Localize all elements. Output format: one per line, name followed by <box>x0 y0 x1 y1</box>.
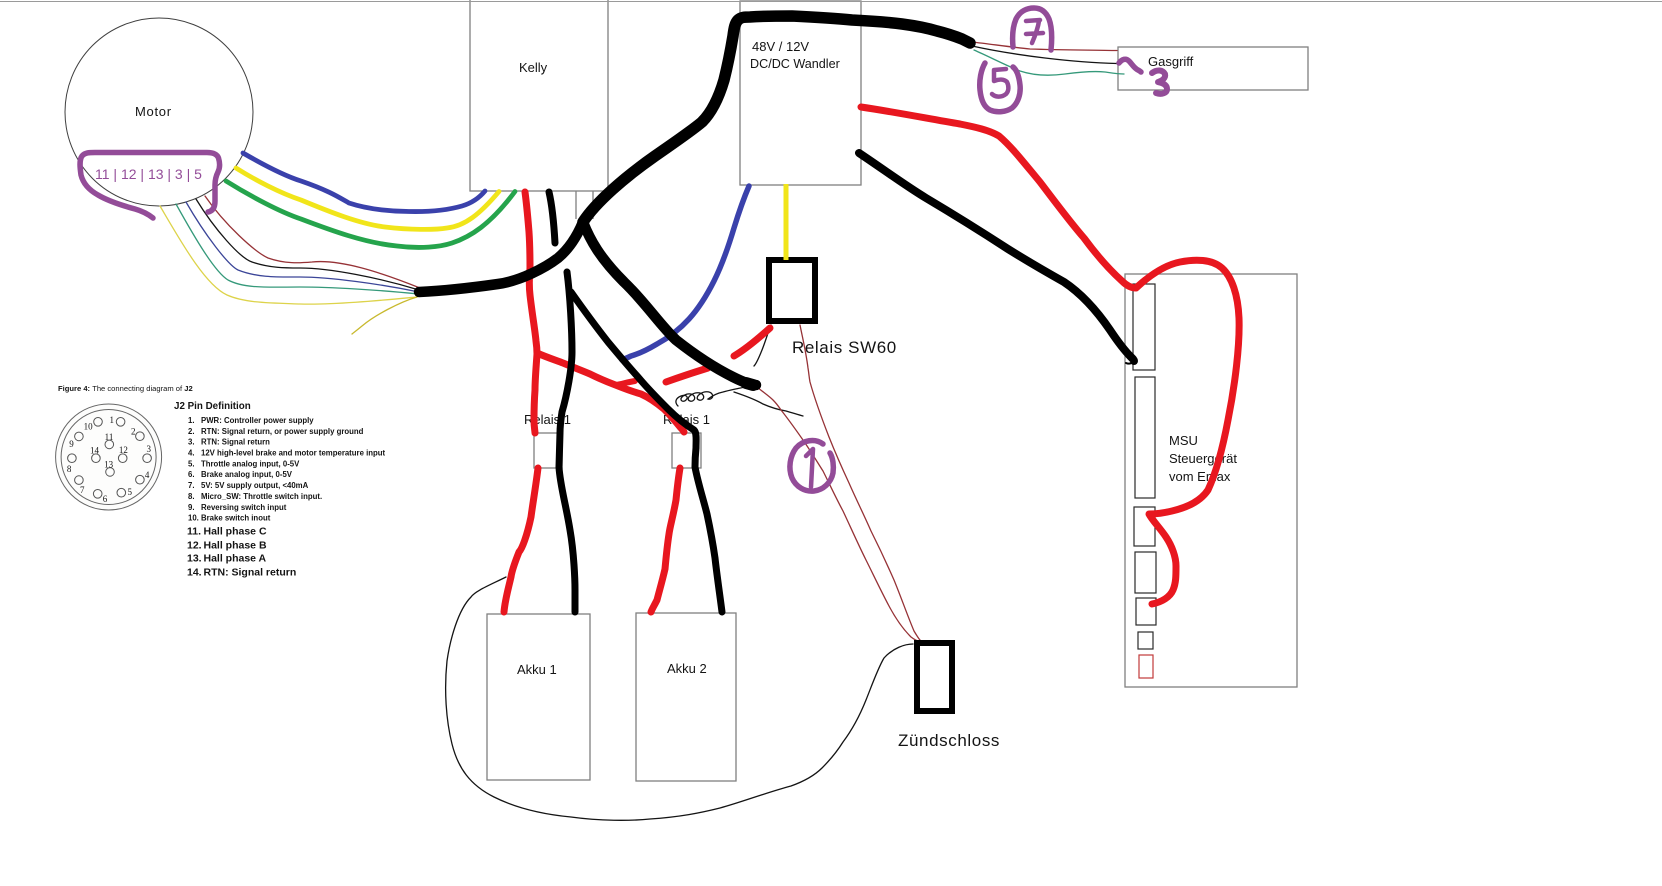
svg-text:vom Emax: vom Emax <box>1169 469 1231 484</box>
svg-text:2: 2 <box>131 427 136 437</box>
svg-text:Hall phase A: Hall phase A <box>204 553 267 565</box>
svg-text:Reversing switch input: Reversing switch input <box>201 503 287 512</box>
svg-text:PWR: Controller power supply: PWR: Controller power supply <box>201 416 314 425</box>
svg-text:10.: 10. <box>188 514 199 523</box>
svg-text:11.: 11. <box>187 525 201 537</box>
svg-text:1: 1 <box>109 415 114 425</box>
svg-text:5.: 5. <box>188 459 195 468</box>
svg-text:RTN: Signal return: RTN: Signal return <box>201 438 270 447</box>
svg-text:Zündschloss: Zündschloss <box>898 731 1000 750</box>
svg-text:Motor: Motor <box>135 104 172 119</box>
svg-text:12: 12 <box>119 445 128 455</box>
svg-text:12.: 12. <box>187 539 202 551</box>
svg-text:4.: 4. <box>188 449 195 458</box>
svg-text:Hall phase B: Hall phase B <box>204 539 267 551</box>
svg-text:12V high-level brake and motor: 12V high-level brake and motor temperatu… <box>201 449 386 458</box>
svg-text:Micro_SW: Throttle switch inpu: Micro_SW: Throttle switch input. <box>201 492 322 501</box>
svg-text:5V: 5V supply output, <40mA: 5V: 5V supply output, <40mA <box>201 481 309 490</box>
svg-text:Brake switch inout: Brake switch inout <box>201 514 271 523</box>
svg-text:13.: 13. <box>187 553 202 565</box>
svg-text:Relais SW60: Relais SW60 <box>792 338 897 357</box>
svg-text:48V / 12V: 48V / 12V <box>752 39 809 54</box>
svg-text:8.: 8. <box>188 492 195 501</box>
svg-text:9.: 9. <box>188 503 195 512</box>
svg-text:10: 10 <box>84 422 94 432</box>
svg-text:7.: 7. <box>188 481 195 490</box>
svg-text:11 | 12 | 13 | 3 | 5: 11 | 12 | 13 | 3 | 5 <box>95 166 202 182</box>
svg-text:4: 4 <box>145 470 150 480</box>
svg-text:MSU: MSU <box>1169 433 1198 448</box>
svg-text:Throttle analog input, 0-5V: Throttle analog input, 0-5V <box>201 459 300 468</box>
svg-text:Brake analog input, 0-5V: Brake analog input, 0-5V <box>201 470 293 479</box>
svg-text:3: 3 <box>147 444 152 454</box>
svg-text:7: 7 <box>80 485 85 495</box>
svg-text:Figure 4: The connecting diagr: Figure 4: The connecting diagram of J2 <box>58 384 193 393</box>
svg-text:Gasgriff: Gasgriff <box>1148 54 1194 69</box>
svg-text:6: 6 <box>103 494 108 504</box>
svg-text:2.: 2. <box>188 427 195 436</box>
svg-text:Akku 1: Akku 1 <box>517 662 557 677</box>
svg-text:13: 13 <box>104 460 114 470</box>
svg-text:Kelly: Kelly <box>519 60 548 75</box>
svg-text:J2 Pin Definition: J2 Pin Definition <box>174 401 251 412</box>
svg-text:9: 9 <box>69 439 74 449</box>
svg-text:6.: 6. <box>188 470 195 479</box>
svg-text:1.: 1. <box>188 416 195 425</box>
svg-text:14.: 14. <box>187 566 202 578</box>
svg-text:RTN: Signal return, or power s: RTN: Signal return, or power supply grou… <box>201 427 364 436</box>
svg-text:Akku 2: Akku 2 <box>667 661 707 676</box>
svg-text:5: 5 <box>127 487 132 497</box>
svg-text:DC/DC Wandler: DC/DC Wandler <box>750 57 840 71</box>
svg-text:14: 14 <box>90 446 100 456</box>
svg-text:3.: 3. <box>188 438 195 447</box>
svg-text:8: 8 <box>67 464 72 474</box>
svg-text:RTN: Signal return: RTN: Signal return <box>204 566 297 578</box>
svg-text:11: 11 <box>105 432 114 442</box>
svg-text:Steuergerät: Steuergerät <box>1169 451 1237 466</box>
svg-text:Hall phase C: Hall phase C <box>204 525 267 537</box>
